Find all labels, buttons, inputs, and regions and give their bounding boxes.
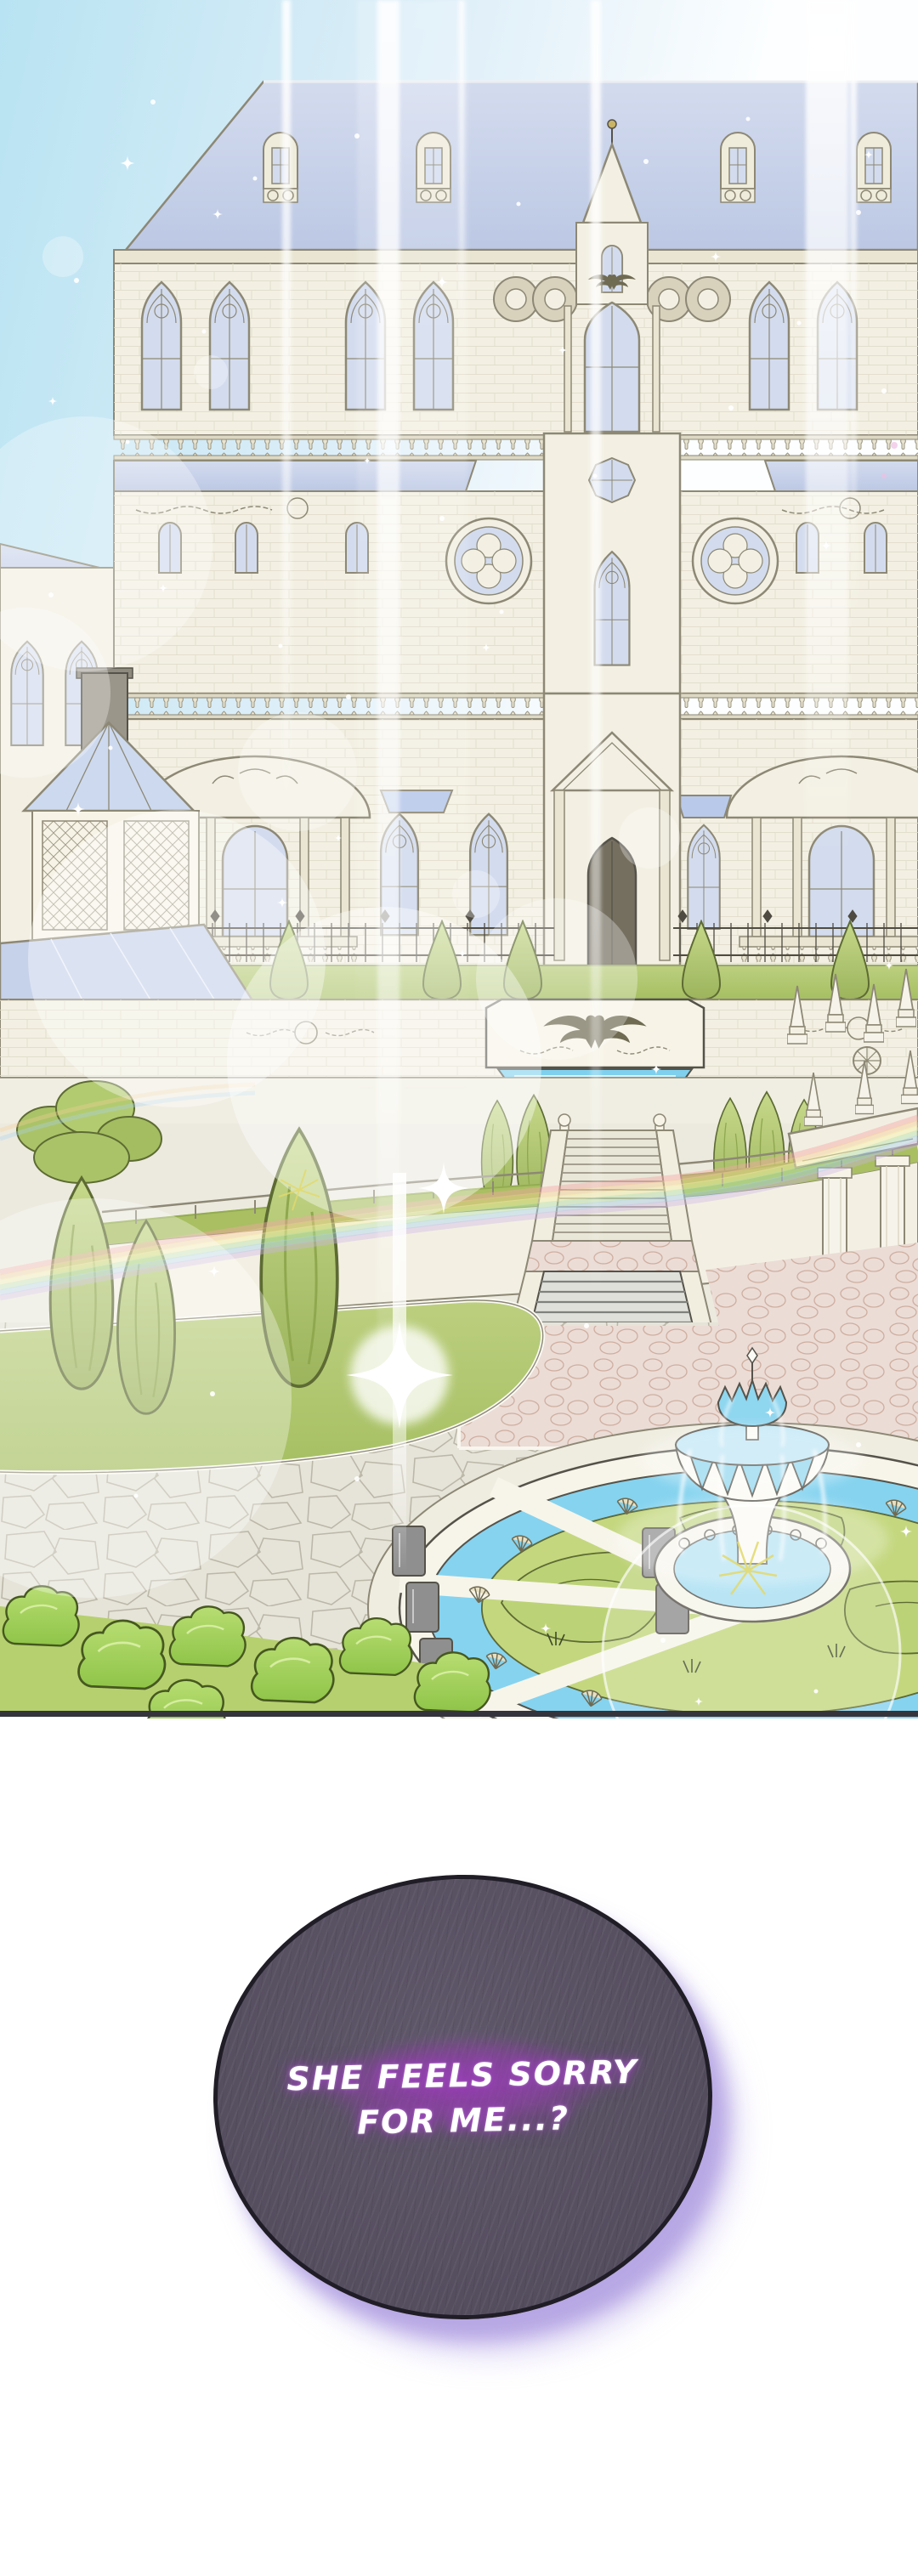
gothic-window [750,282,789,410]
cornice [114,250,918,263]
panel-border [0,1711,918,1717]
stair-ball-post [558,1114,570,1126]
window-awning [677,795,731,818]
mansard-roof [126,82,918,250]
gothic-window [142,282,181,410]
stair-ball-post [654,1114,666,1126]
rose-window [693,518,778,603]
balustrade [114,694,918,719]
illustration-panel [0,0,918,1718]
pink-sparkle [891,442,898,449]
pink-sparkle [881,473,887,478]
gothic-window [210,282,249,410]
bokeh-circle [42,236,83,277]
gothic-window [688,825,719,929]
gold-finial [608,120,616,128]
bokeh-circle [194,355,228,389]
bokeh-circle [619,807,680,869]
arch-window [864,523,887,573]
mist [642,1424,863,1492]
light-streak [591,0,601,1292]
comic-page: SHE FEELS SORRY FOR ME...? [0,0,918,2576]
light-streak [357,0,467,1105]
stone-post [406,1582,439,1632]
bokeh-circle [238,712,357,831]
dormer-window [721,133,755,202]
light-streak [282,0,291,816]
column [564,306,571,432]
light-streak [806,0,848,850]
light-streak [459,0,464,340]
palace-garden-scene [0,0,918,1718]
bubble-text: SHE FEELS SORRY FOR ME...? [217,2048,709,2149]
dormer-window [263,133,297,202]
dormer-window [857,133,891,202]
arch-window [235,523,258,573]
balustrade [114,435,918,460]
column [653,306,660,432]
bokeh-circle [476,898,637,1060]
thought-bubble: SHE FEELS SORRY FOR ME...? [209,1870,717,2324]
stair-landing [525,1241,699,1271]
light-streak [850,0,857,612]
